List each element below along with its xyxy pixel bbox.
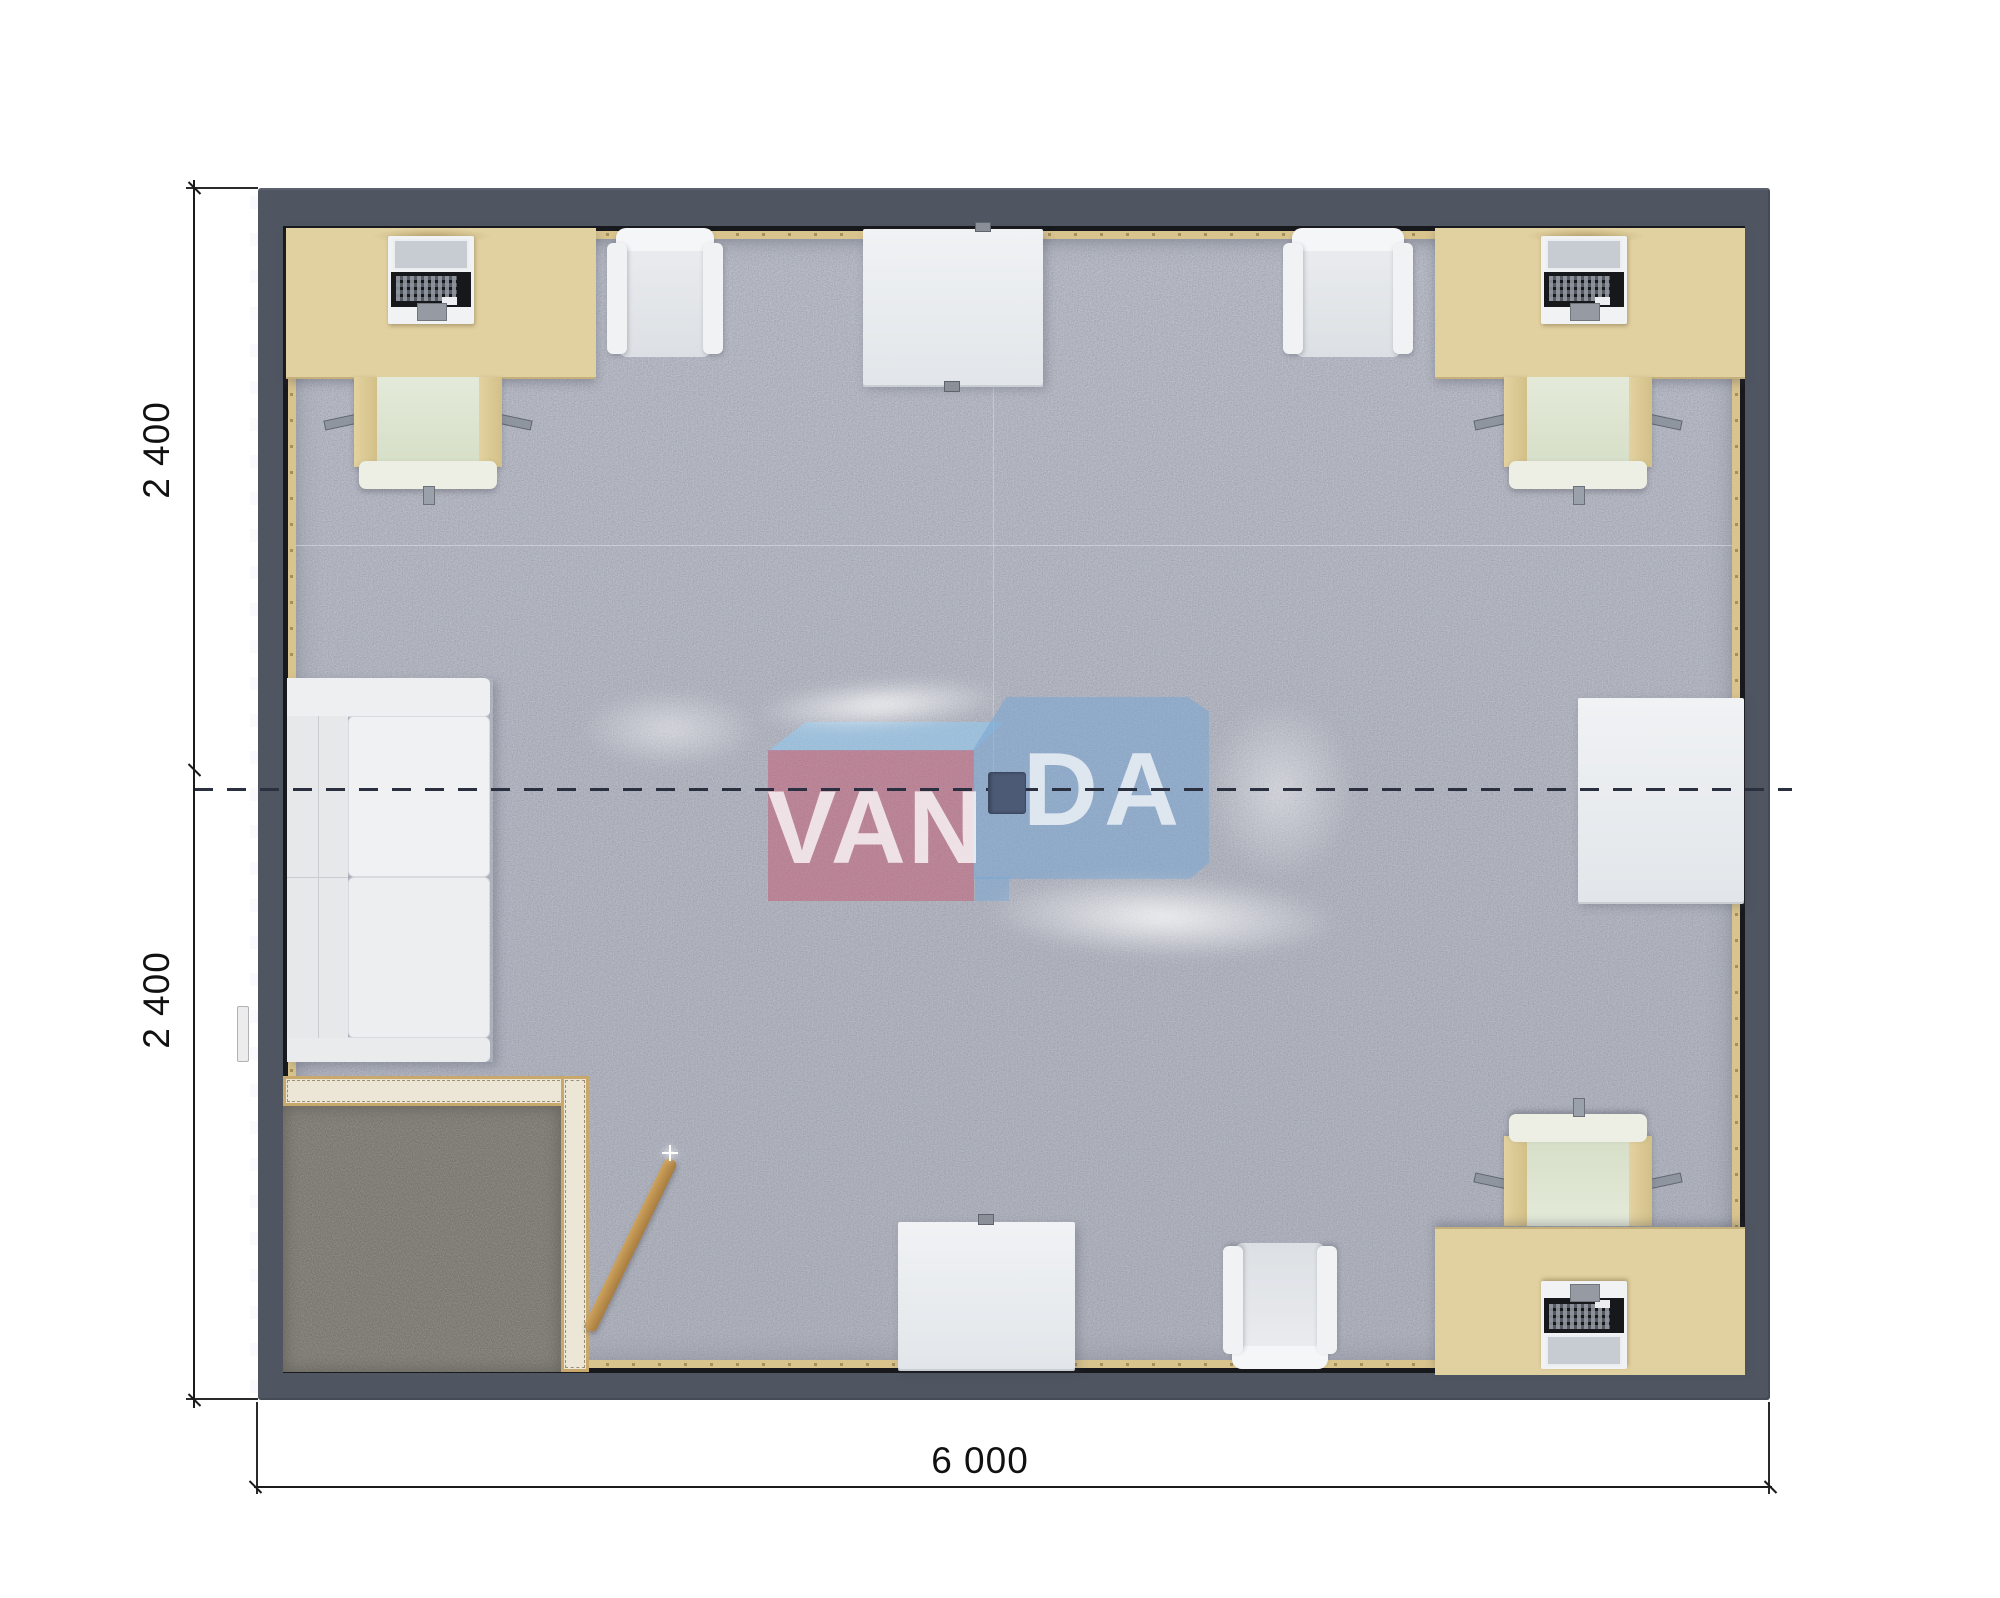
chair-frame-right	[1629, 1136, 1652, 1226]
task-chair-top-right	[1504, 377, 1652, 489]
chair-backrest	[1509, 461, 1647, 489]
chair-frame-left	[1504, 1136, 1527, 1226]
task-chair-bottom-right	[1504, 1114, 1652, 1226]
door-handle	[237, 1006, 249, 1062]
armchair-arm-left	[1223, 1246, 1243, 1354]
armchair-arm-right	[1393, 243, 1413, 354]
computer-trackpad	[1570, 1284, 1600, 1302]
dimension-label-bottom: 6 000	[790, 1440, 1170, 1482]
armchair-bottom	[1223, 1240, 1337, 1369]
sofa-back-divider	[287, 877, 348, 878]
dimension-label-left-bottom: 2 400	[137, 940, 177, 1060]
ceiling-unit	[988, 772, 1026, 814]
dimension-line-bottom	[254, 1486, 1772, 1488]
chair-seat-cushion	[377, 377, 479, 465]
computer-bottom-right	[1541, 1281, 1627, 1369]
watermark-text-van: VAN	[770, 762, 982, 894]
computer-screen	[1546, 1335, 1622, 1366]
computer-top-left	[388, 236, 474, 324]
computer-keyboard	[1544, 1298, 1624, 1333]
armchair-arm-right	[1317, 1246, 1337, 1354]
carpet-seam-horizontal	[296, 545, 1732, 546]
table-bottom-leg	[978, 1214, 994, 1225]
table-top-bracket	[975, 222, 991, 232]
chair-backrest	[359, 461, 497, 489]
table-top-center	[863, 229, 1043, 385]
glint-bar-v	[669, 1145, 671, 1161]
broom-glint-sparkle	[662, 1145, 678, 1161]
armchair-seat	[1235, 1243, 1325, 1346]
floor-plan-stage: VAN DA	[0, 0, 2000, 1598]
table-bottom-center	[898, 1222, 1075, 1369]
computer-top-right	[1541, 236, 1627, 324]
armchair-seat	[619, 251, 711, 357]
extension-line-bottom-start	[256, 1402, 258, 1494]
task-chair-top-left	[354, 377, 502, 489]
sofa-armrest-bottom	[287, 1037, 490, 1062]
computer-keyboard	[391, 272, 471, 307]
computer-trackpad	[1570, 303, 1600, 321]
chair-leg	[1573, 1098, 1585, 1117]
sofa-seat-cushion-1	[348, 716, 490, 877]
chair-frame-right	[479, 377, 502, 467]
extension-line-bottom-end	[1768, 1402, 1770, 1494]
table-top-leg	[944, 381, 960, 392]
chair-leg	[423, 486, 435, 505]
sofa-armrest-top	[287, 678, 490, 717]
computer-keyboard	[1544, 272, 1624, 307]
sofa	[287, 678, 493, 1062]
wall-corrugation-left	[250, 196, 258, 1394]
armchair-arm-left	[607, 243, 627, 354]
vestibule-partition-horizontal	[283, 1076, 589, 1106]
armchair-seat	[1295, 251, 1401, 357]
armchair-top-right	[1283, 228, 1413, 360]
armchair-top-left	[607, 228, 723, 360]
chair-seat-cushion	[1527, 1138, 1629, 1226]
computer-screen	[1546, 239, 1622, 270]
chair-seat-cushion	[1527, 377, 1629, 465]
dimension-line-left	[193, 180, 195, 1408]
dimension-label-left-top: 2 400	[137, 390, 177, 510]
table-right-wall	[1578, 698, 1744, 902]
chair-backrest	[1509, 1114, 1647, 1142]
chair-frame-left	[354, 377, 377, 467]
armchair-arm-right	[703, 243, 723, 354]
chair-leg	[1573, 486, 1585, 505]
computer-screen	[393, 239, 469, 270]
light-reflection-4	[580, 690, 760, 768]
computer-trackpad	[417, 303, 447, 321]
armchair-arm-left	[1283, 243, 1303, 354]
extension-line-bottom-left	[186, 1398, 258, 1400]
chair-frame-right	[1629, 377, 1652, 467]
light-reflection-2	[984, 870, 1342, 964]
entry-mat-noise	[283, 1106, 561, 1372]
sofa-seat-cushion-2	[348, 877, 490, 1038]
chair-frame-left	[1504, 377, 1527, 467]
sofa-backrest	[287, 716, 348, 1038]
entry-mat	[283, 1106, 561, 1372]
